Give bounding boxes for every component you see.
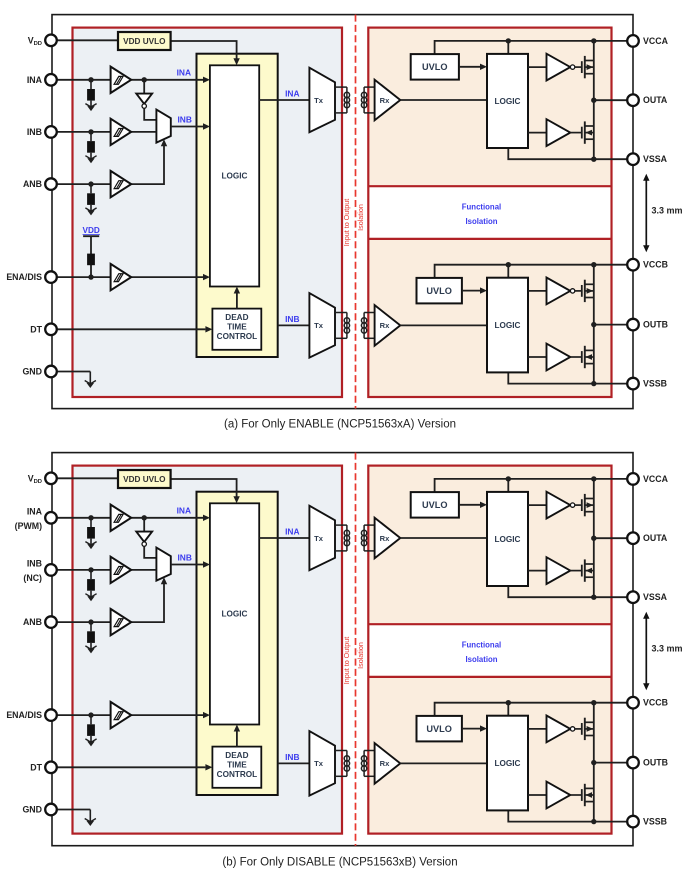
svg-text:3.3 mm: 3.3 mm xyxy=(652,205,683,215)
svg-text:CONTROL: CONTROL xyxy=(217,770,257,779)
svg-text:INB: INB xyxy=(27,559,42,569)
svg-text:ENA/DIS: ENA/DIS xyxy=(6,710,42,720)
svg-text:ENA/DIS: ENA/DIS xyxy=(6,272,42,282)
svg-text:Rx: Rx xyxy=(380,321,390,330)
svg-text:ANB: ANB xyxy=(23,617,42,627)
svg-text:TIME: TIME xyxy=(227,761,247,770)
svg-text:VDD UVLO: VDD UVLO xyxy=(123,37,166,46)
svg-text:(a) For Only ENABLE (NCP51563x: (a) For Only ENABLE (NCP51563xA) Version xyxy=(224,419,456,431)
svg-text:UVLO: UVLO xyxy=(426,724,452,734)
svg-text:TIME: TIME xyxy=(227,323,247,332)
svg-text:VCCB: VCCB xyxy=(643,698,668,708)
svg-text:INA: INA xyxy=(285,88,299,98)
svg-text:CONTROL: CONTROL xyxy=(217,332,257,341)
svg-text:VSSA: VSSA xyxy=(643,592,668,602)
svg-text:Input to Output: Input to Output xyxy=(342,199,351,247)
svg-text:INA: INA xyxy=(285,526,299,536)
svg-text:INB: INB xyxy=(285,314,299,324)
svg-text:VDD: VDD xyxy=(28,35,42,47)
svg-text:Rx: Rx xyxy=(380,759,390,768)
svg-text:Functional: Functional xyxy=(462,640,501,649)
svg-text:Isolation: Isolation xyxy=(465,655,497,664)
svg-text:VDD: VDD xyxy=(28,473,42,485)
svg-text:VCCA: VCCA xyxy=(643,474,669,484)
svg-text:Rx: Rx xyxy=(380,96,390,105)
svg-text:INA: INA xyxy=(177,68,191,78)
svg-text:INA: INA xyxy=(27,75,43,85)
svg-text:DEAD: DEAD xyxy=(225,313,248,322)
svg-text:GND: GND xyxy=(22,805,42,815)
svg-text:(b) For Only DISABLE (NCP51563: (b) For Only DISABLE (NCP51563xB) Versio… xyxy=(222,857,457,869)
svg-text:(PWM): (PWM) xyxy=(15,521,42,531)
svg-text:INA: INA xyxy=(177,506,191,516)
svg-text:LOGIC: LOGIC xyxy=(495,97,521,106)
svg-text:Functional: Functional xyxy=(462,202,501,211)
svg-text:INA: INA xyxy=(27,507,43,517)
svg-text:OUTB: OUTB xyxy=(643,320,668,330)
svg-text:3.3 mm: 3.3 mm xyxy=(652,643,683,653)
svg-text:INB: INB xyxy=(27,127,42,137)
svg-text:UVLO: UVLO xyxy=(426,286,452,296)
svg-text:UVLO: UVLO xyxy=(422,62,448,72)
svg-text:Rx: Rx xyxy=(380,534,390,543)
svg-text:DT: DT xyxy=(30,762,42,772)
svg-text:LOGIC: LOGIC xyxy=(222,171,248,180)
svg-text:Isolation: Isolation xyxy=(356,204,365,231)
svg-text:LOGIC: LOGIC xyxy=(495,321,521,330)
svg-text:GND: GND xyxy=(22,367,42,377)
svg-text:VCCA: VCCA xyxy=(643,36,669,46)
svg-text:Isolation: Isolation xyxy=(465,217,497,226)
svg-text:OUTA: OUTA xyxy=(643,95,668,105)
svg-text:Tx: Tx xyxy=(314,321,324,330)
svg-text:VDD UVLO: VDD UVLO xyxy=(123,475,166,484)
svg-text:LOGIC: LOGIC xyxy=(495,535,521,544)
svg-text:OUTB: OUTB xyxy=(643,758,668,768)
svg-text:LOGIC: LOGIC xyxy=(222,609,248,618)
svg-text:OUTA: OUTA xyxy=(643,533,668,543)
svg-text:INB: INB xyxy=(177,114,191,124)
svg-text:Input to Output: Input to Output xyxy=(342,637,351,685)
svg-text:INB: INB xyxy=(285,752,299,762)
svg-text:VCCB: VCCB xyxy=(643,260,668,270)
svg-text:VSSB: VSSB xyxy=(643,817,667,827)
svg-text:VDD: VDD xyxy=(83,226,100,235)
svg-text:VSSA: VSSA xyxy=(643,154,668,164)
svg-text:Tx: Tx xyxy=(314,534,324,543)
svg-text:VSSB: VSSB xyxy=(643,379,667,389)
svg-text:LOGIC: LOGIC xyxy=(495,759,521,768)
svg-text:INB: INB xyxy=(177,552,191,562)
svg-text:Tx: Tx xyxy=(314,96,324,105)
svg-text:DT: DT xyxy=(30,324,42,334)
svg-text:Tx: Tx xyxy=(314,759,324,768)
svg-text:UVLO: UVLO xyxy=(422,500,448,510)
svg-text:(NC): (NC) xyxy=(23,573,42,583)
svg-text:Isolation: Isolation xyxy=(356,642,365,669)
svg-text:DEAD: DEAD xyxy=(225,751,248,760)
svg-text:ANB: ANB xyxy=(23,179,42,189)
